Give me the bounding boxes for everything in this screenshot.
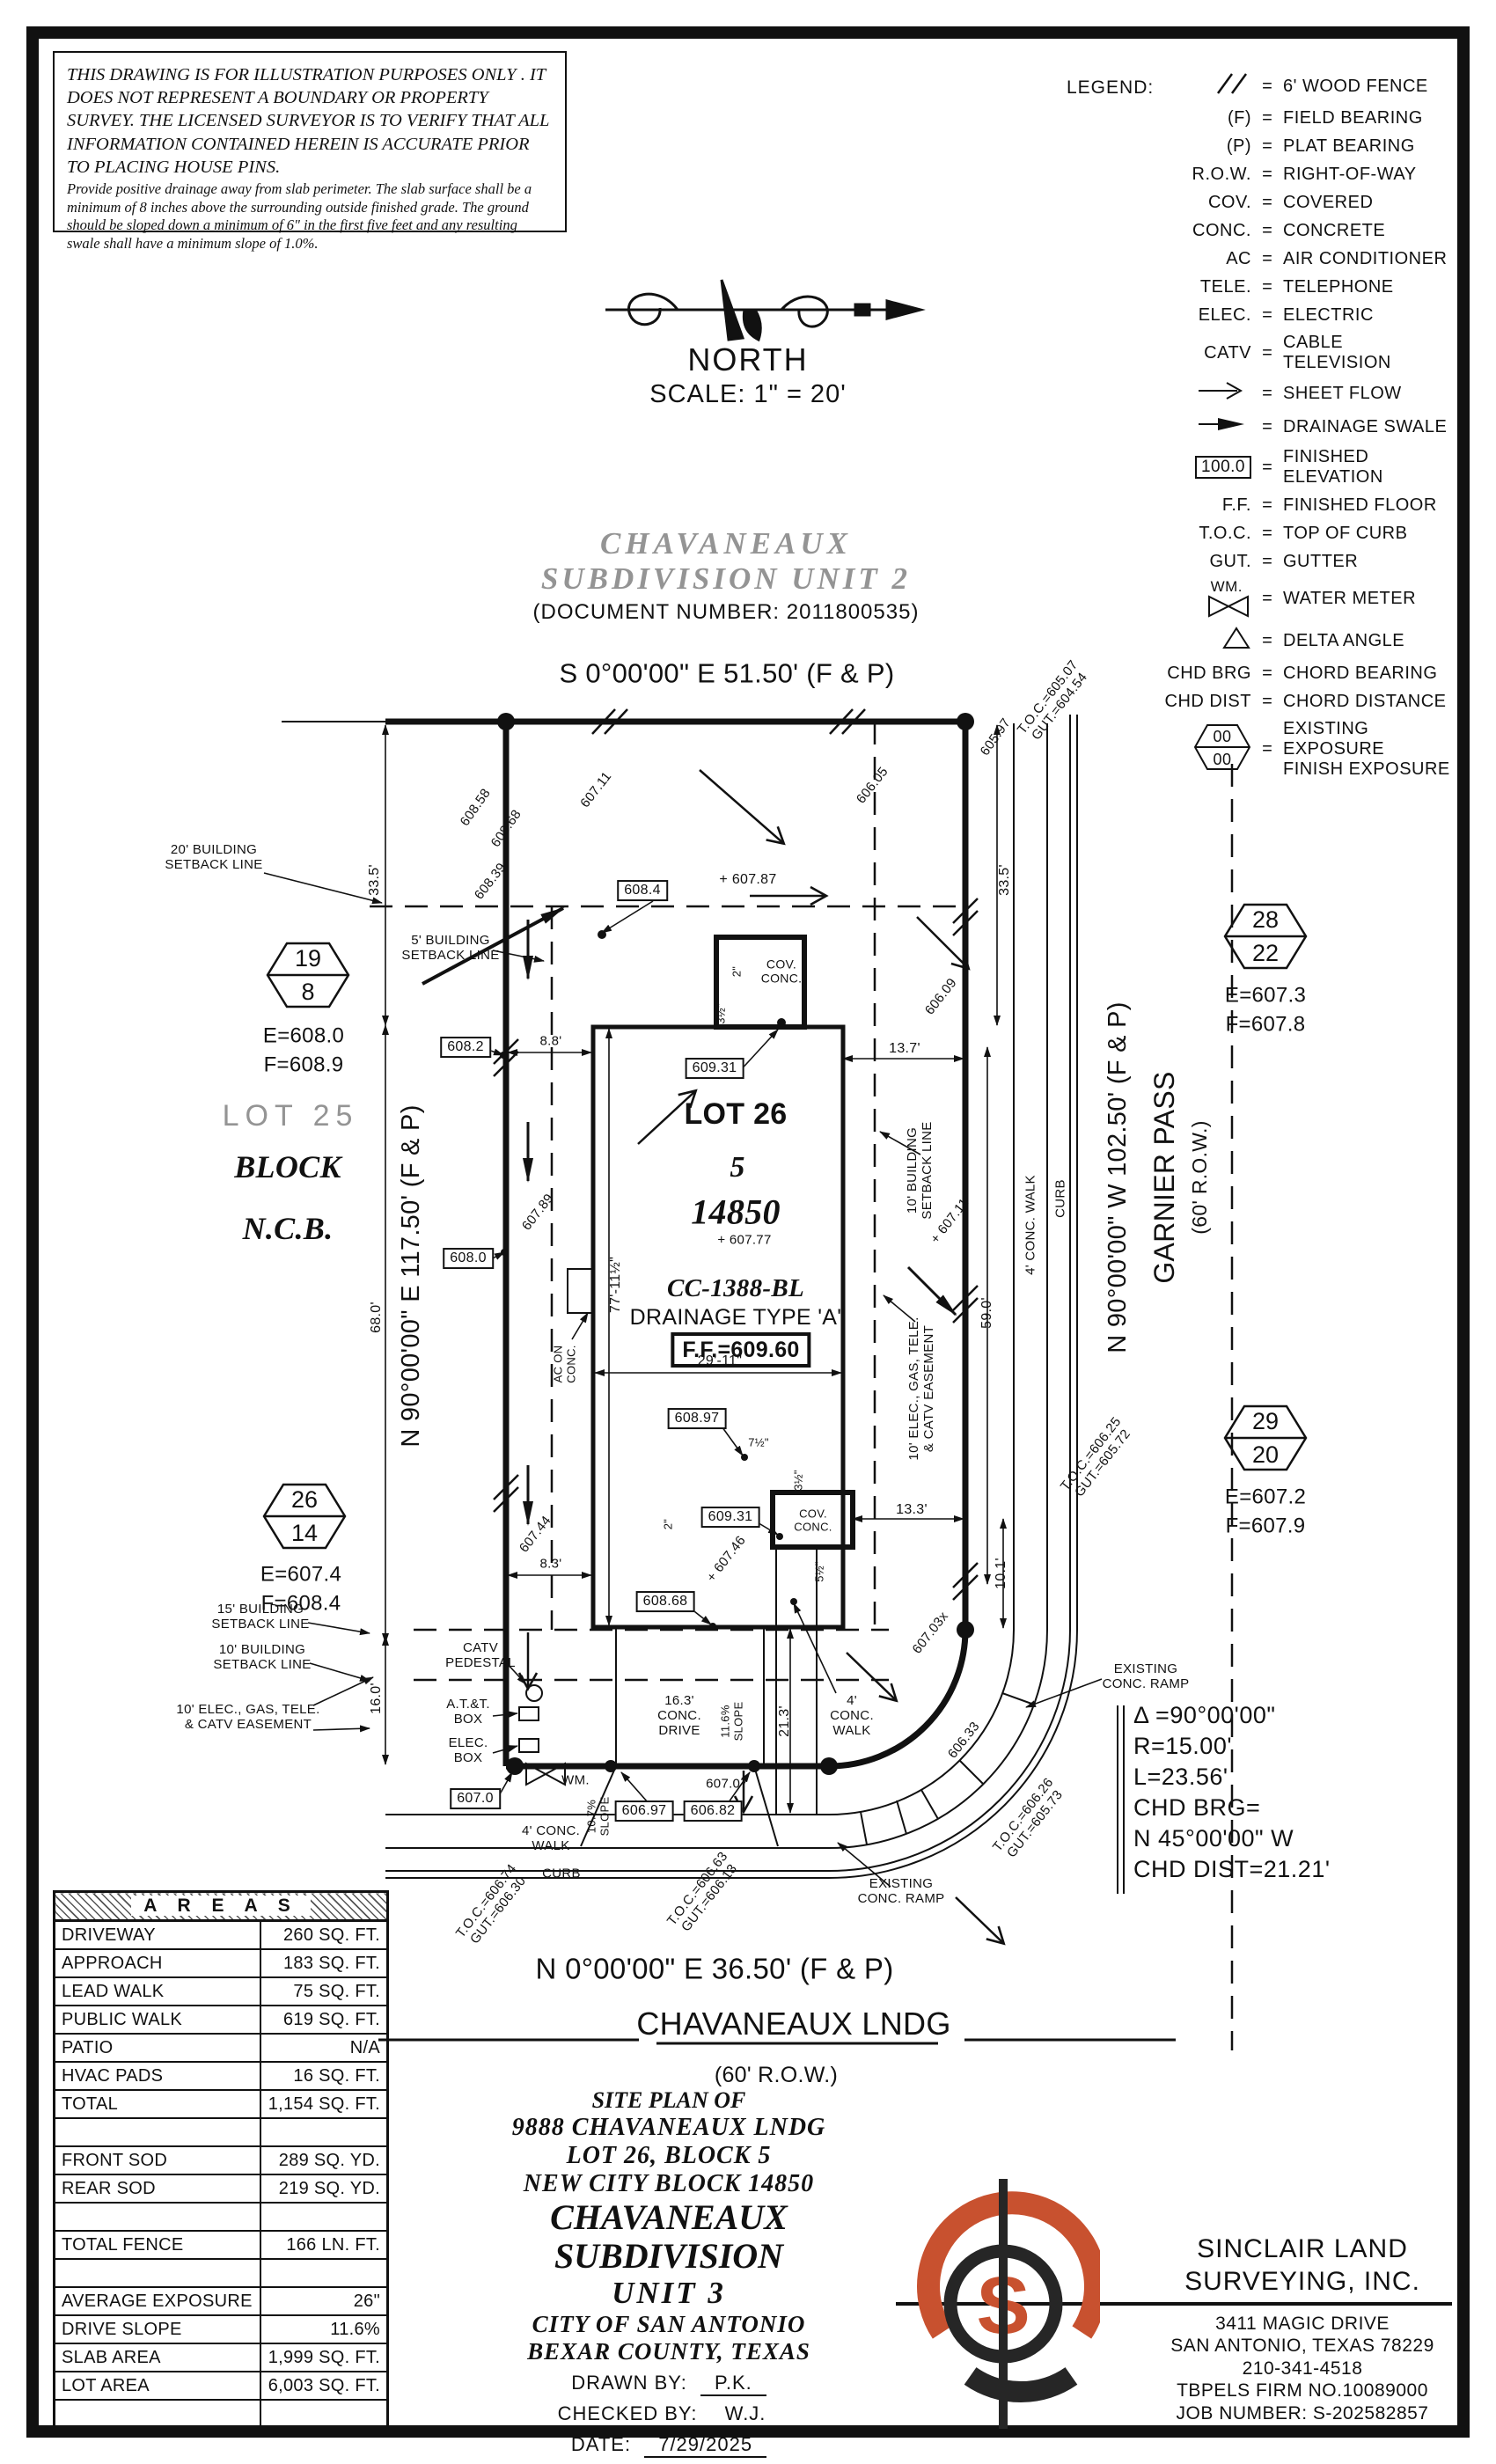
areas-row-value: 1,154 SQ. FT. <box>260 2090 388 2118</box>
plan-label: 15' BUILDING SETBACK LINE <box>211 1602 309 1632</box>
plan-label: 77'-11½" <box>608 1257 624 1313</box>
areas-row-label <box>55 2259 261 2287</box>
checked-by-value: W.J. <box>711 2402 781 2427</box>
legend-item: COV.=COVERED <box>1144 192 1452 213</box>
plan-label: N.C.B. <box>243 1211 334 1246</box>
areas-row-value: 219 SQ. YD. <box>260 2174 388 2203</box>
curve-data-line: N 45°00'00" W <box>1133 1823 1397 1854</box>
curve-data-line: CHD BRG= <box>1133 1793 1397 1823</box>
areas-row-value: N/A <box>260 2034 388 2062</box>
plan-label: 10' ELEC., GAS, TELE. & CATV EASEMENT <box>907 1316 937 1460</box>
plan-label: 608.97 <box>668 1408 727 1429</box>
legend-label: CHORD DISTANCE <box>1283 692 1447 712</box>
street-walk-curb <box>385 715 1077 1878</box>
legend-label: CONCRETE <box>1283 221 1385 241</box>
title-block-line: CHAVANEAUX SUBDIVISION <box>440 2198 898 2276</box>
plan-label: 7½" <box>748 1437 769 1450</box>
plan-label: + 607.46 <box>705 1534 750 1586</box>
hex-existing-exposure: 19 <box>295 945 321 972</box>
plan-label: 606.82 <box>684 1800 743 1822</box>
areas-row-label: HVAC PADS <box>55 2062 261 2090</box>
site-plan-sheet: THIS DRAWING IS FOR ILLUSTRATION PURPOSE… <box>0 0 1496 2464</box>
bearing-south-line: N 0°00'00" E 36.50' (F & P) <box>536 1954 894 1986</box>
title-block-line: UNIT 3 <box>440 2276 898 2310</box>
date-value: 7/29/2025 <box>644 2433 766 2458</box>
company-name-1: SINCLAIR LAND <box>1148 2233 1456 2266</box>
disclaimer-text-2: Provide positive drainage away from slab… <box>67 180 553 253</box>
legend-label: COVERED <box>1283 193 1373 213</box>
plan-label: 608.39 <box>473 861 510 903</box>
plan-label: 608.2 <box>440 1037 491 1058</box>
equals-sign: = <box>1251 552 1283 572</box>
legend-label: WATER METER <box>1283 589 1416 609</box>
company-street: 3411 MAGIC DRIVE <box>1140 2313 1465 2335</box>
north-arrow-icon <box>605 280 920 340</box>
legend-item: WM.=WATER METER <box>1144 579 1452 619</box>
areas-row-label: REAR SOD <box>55 2174 261 2203</box>
plan-label: 4' CONC. WALK <box>830 1694 874 1738</box>
plan-label: (60' R.O.W.) <box>1189 1120 1212 1234</box>
company-name: SINCLAIR LAND SURVEYING, INC. <box>1148 2233 1456 2298</box>
areas-row-label: DRIVEWAY <box>55 1921 261 1950</box>
plan-label: 607.89 <box>520 1192 558 1234</box>
triangle-icon <box>1144 626 1251 656</box>
plan-label: 16.0' <box>369 1683 385 1714</box>
hex-finish-exposure: 22 <box>1252 940 1279 966</box>
plan-label: 607.07 <box>706 1778 748 1793</box>
areas-row <box>55 2203 388 2231</box>
lot-hex-marker: 198 <box>266 938 350 1012</box>
areas-row-label <box>55 2400 261 2429</box>
hex-existing-exposure: 28 <box>1252 906 1279 933</box>
areas-row-label: PATIO <box>55 2034 261 2062</box>
plan-label: F=607.8 <box>1226 1014 1306 1038</box>
company-name-2: SURVEYING, INC. <box>1148 2266 1456 2299</box>
legend-label: DRAINAGE SWALE <box>1283 417 1447 437</box>
areas-row: DRIVE SLOPE11.6% <box>55 2315 388 2343</box>
plan-label: 5' BUILDING SETBACK LINE <box>401 934 499 964</box>
plan-label: 608.68 <box>488 808 524 851</box>
areas-row-label <box>55 2203 261 2231</box>
plan-label: 33.5' <box>997 864 1013 896</box>
lot-hex-marker: 2614 <box>262 1479 347 1553</box>
areas-row-value: 289 SQ. YD. <box>260 2146 388 2174</box>
areas-row: TOTAL1,154 SQ. FT. <box>55 2090 388 2118</box>
legend-items: =6' WOOD FENCE(F)=FIELD BEARING(P)=PLAT … <box>1144 72 1452 780</box>
areas-row <box>55 2118 388 2146</box>
plan-label: AC ON CONC. <box>552 1345 577 1382</box>
areas-row-label: AVERAGE EXPOSURE <box>55 2287 261 2315</box>
plan-label: 13.3' <box>896 1502 928 1518</box>
legend-label: 6' WOOD FENCE <box>1283 77 1428 97</box>
plan-label: E=607.4 <box>260 1564 341 1588</box>
areas-row <box>55 2400 388 2429</box>
tie-points <box>500 930 797 1630</box>
areas-row-label: DRIVE SLOPE <box>55 2315 261 2343</box>
plan-label: CC-1388-BL <box>667 1274 804 1302</box>
disclaimer-note: THIS DRAWING IS FOR ILLUSTRATION PURPOSE… <box>53 51 567 232</box>
legend-item: CATV=CABLE TELEVISION <box>1144 333 1452 373</box>
legend-symbol: F.F. <box>1144 495 1251 516</box>
equals-sign: = <box>1251 249 1283 269</box>
equals-sign: = <box>1251 631 1283 651</box>
legend-symbol: (P) <box>1144 136 1251 157</box>
lot-number-label: LOT 26 <box>684 1097 787 1131</box>
utility-symbols <box>519 1685 565 1785</box>
plan-label: DRAINAGE TYPE 'A' <box>630 1305 842 1330</box>
areas-row-value: 6,003 SQ. FT. <box>260 2372 388 2400</box>
title-block-line: LOT 26, BLOCK 5 <box>440 2142 898 2170</box>
equals-sign: = <box>1251 524 1283 544</box>
plan-label: 608.0 <box>443 1248 494 1269</box>
plan-label: (60' R.O.W.) <box>715 2063 838 2087</box>
street-centerline <box>378 2040 1176 2043</box>
legend-label: RIGHT-OF-WAY <box>1283 165 1417 185</box>
areas-table-header: A R E A S <box>55 1892 388 1921</box>
legend-label: AIR CONDITIONER <box>1283 249 1447 269</box>
plan-label: 11.6% SLOPE <box>719 1702 744 1742</box>
equals-sign: = <box>1251 458 1283 478</box>
equals-sign: = <box>1251 495 1283 516</box>
svg-text:00: 00 <box>1213 728 1231 745</box>
plan-label: 608.58 <box>458 787 494 830</box>
equals-sign: = <box>1251 193 1283 213</box>
street-name-chavaneaux: CHAVANEAUX LNDG <box>636 2006 950 2042</box>
legend-title: LEGEND: <box>1067 77 1154 99</box>
legend-symbol: COV. <box>1144 193 1251 213</box>
plan-label: 10.7% SLOPE <box>585 1797 611 1837</box>
areas-row: REAR SOD219 SQ. YD. <box>55 2174 388 2203</box>
plan-label: 8.3' <box>540 1558 562 1573</box>
curve-data-block: Δ =90°00'00"R=15.00'L=23.56'CHD BRG=N 45… <box>1133 1700 1397 1885</box>
areas-row: APPROACH183 SQ. FT. <box>55 1949 388 1977</box>
legend-label: GUTTER <box>1283 552 1358 572</box>
plan-label: 10.1' <box>994 1558 1009 1589</box>
areas-row-value: 16 SQ. FT. <box>260 2062 388 2090</box>
plan-label: 13.7' <box>889 1041 920 1057</box>
legend-item: R.O.W.=RIGHT-OF-WAY <box>1144 164 1452 185</box>
legend-item: (P)=PLAT BEARING <box>1144 136 1452 157</box>
legend-item: CHD BRG=CHORD BEARING <box>1144 663 1452 684</box>
company-phone: 210-341-4518 <box>1140 2358 1465 2380</box>
legend-item: CONC.=CONCRETE <box>1144 220 1452 241</box>
areas-row-value: 11.6% <box>260 2315 388 2343</box>
legend-item: CHD DIST=CHORD DISTANCE <box>1144 691 1452 712</box>
plan-label: + 607.77 <box>717 1234 771 1249</box>
plan-label: 3½" <box>793 1470 806 1491</box>
curve-data-line: Δ =90°00'00" <box>1133 1700 1397 1731</box>
areas-row-label: TOTAL FENCE <box>55 2231 261 2259</box>
legend-item: ELEC.=ELECTRIC <box>1144 304 1452 326</box>
equals-sign: = <box>1251 305 1283 326</box>
plan-label: F=608.9 <box>264 1054 344 1078</box>
curve-data-line: CHD DIST=21.21' <box>1133 1854 1397 1885</box>
adjacent-lot-label: LOT 25 <box>223 1099 359 1133</box>
equals-sign: = <box>1251 136 1283 157</box>
plan-label: 16.3' CONC. DRIVE <box>657 1694 701 1738</box>
legend-symbol: ELEC. <box>1144 305 1251 326</box>
areas-row: TOTAL FENCE166 LN. FT. <box>55 2231 388 2259</box>
areas-row-label: PUBLIC WALK <box>55 2006 261 2034</box>
legend-label: SHEET FLOW <box>1283 384 1402 404</box>
equals-sign: = <box>1251 692 1283 712</box>
plan-label: F=607.9 <box>1226 1515 1306 1539</box>
hex-icon: 0000 <box>1144 722 1251 778</box>
legend-symbol: R.O.W. <box>1144 165 1251 185</box>
title-block-line: NEW CITY BLOCK 14850 <box>440 2170 898 2198</box>
areas-row: LOT AREA6,003 SQ. FT. <box>55 2372 388 2400</box>
areas-row-value: 75 SQ. FT. <box>260 1977 388 2006</box>
equals-sign: = <box>1251 417 1283 437</box>
drawn-by-value: P.K. <box>700 2372 766 2396</box>
legend-item: 0000=EXISTING EXPOSURE FINISH EXPOSURE <box>1144 719 1452 780</box>
scale-label: SCALE: 1" = 20' <box>563 380 933 409</box>
areas-row-value <box>260 2259 388 2287</box>
areas-row: LEAD WALK75 SQ. FT. <box>55 1977 388 2006</box>
legend-label: TOP OF CURB <box>1283 524 1407 544</box>
plan-label: 59.0' <box>979 1297 995 1329</box>
plan-label: 68.0' <box>369 1302 385 1333</box>
legend-symbol: (F) <box>1144 108 1251 128</box>
plan-label: 2" <box>731 966 744 977</box>
areas-row-value <box>260 2203 388 2231</box>
plan-label: 608.68 <box>636 1591 695 1612</box>
equals-sign: = <box>1251 384 1283 404</box>
plan-label: T.O.C.=606.63 GUT.=606.13 <box>665 1850 744 1938</box>
plan-label: 29'-11" <box>698 1353 743 1369</box>
flow-arrows <box>422 770 1003 1943</box>
title-block: SITE PLAN OF9888 CHAVANEAUX LNDGLOT 26, … <box>440 2087 898 2458</box>
lot-hex-marker: 2920 <box>1223 1401 1308 1475</box>
lot-boundary <box>282 722 965 1766</box>
lot-hex-marker: 2822 <box>1223 899 1308 973</box>
areas-row: SLAB AREA1,999 SQ. FT. <box>55 2343 388 2372</box>
title-block-line: 9888 CHAVANEAUX LNDG <box>440 2114 898 2142</box>
subdivision-unit: SUBDIVISION UNIT 2 <box>422 561 1030 597</box>
checked-by-row: CHECKED BY: W.J. <box>440 2402 898 2427</box>
legend-item: F.F.=FINISHED FLOOR <box>1144 495 1452 516</box>
areas-row-label: LOT AREA <box>55 2372 261 2400</box>
plan-label: F=608.4 <box>261 1593 341 1617</box>
plan-label: 609.31 <box>686 1058 744 1079</box>
plan-label: 4' CONC. WALK <box>522 1824 580 1854</box>
plan-label: 8.8' <box>540 1035 562 1050</box>
arrow-open-icon <box>1144 380 1251 407</box>
hex-finish-exposure: 20 <box>1252 1441 1279 1468</box>
equals-sign: = <box>1251 221 1283 241</box>
plan-label: 607.0 <box>450 1788 501 1809</box>
plan-label: T.O.C.=606.74 GUT.=606.30 <box>454 1862 532 1950</box>
ncb-number-label: 14850 <box>691 1193 781 1233</box>
legend-label: FIELD BEARING <box>1283 108 1423 128</box>
legend-item: =6' WOOD FENCE <box>1144 72 1452 100</box>
document-number: (DOCUMENT NUMBER: 2011800535) <box>422 600 1030 625</box>
plan-label: 2" <box>663 1519 676 1529</box>
plan-label: 607.11 <box>578 769 615 810</box>
water-meter-icon <box>526 1764 546 1785</box>
disclaimer-text-1: THIS DRAWING IS FOR ILLUSTRATION PURPOSE… <box>67 63 553 179</box>
legend-symbol: CONC. <box>1144 221 1251 241</box>
areas-row-label: TOTAL <box>55 2090 261 2118</box>
title-block-lines: SITE PLAN OF9888 CHAVANEAUX LNDGLOT 26, … <box>440 2087 898 2365</box>
plan-label: EXISTING CONC. RAMP <box>1103 1662 1190 1692</box>
plan-label: 608.4 <box>617 880 668 901</box>
legend-label: CHORD BEARING <box>1283 664 1437 684</box>
legend-item: =DELTA ANGLE <box>1144 626 1452 656</box>
plan-label: + 607.11 <box>928 1196 972 1247</box>
plan-label: 33.5' <box>367 864 383 896</box>
equals-sign: = <box>1251 739 1283 759</box>
svg-text:00: 00 <box>1213 751 1231 768</box>
plan-label: A.T.&T. BOX <box>446 1698 490 1727</box>
areas-row-value: 260 SQ. FT. <box>260 1921 388 1950</box>
company-city: SAN ANTONIO, TEXAS 78229 <box>1140 2335 1465 2357</box>
finished-elevation-box-icon: 100.0 <box>1144 456 1251 479</box>
subdivision-name: CHAVANEAUX <box>422 526 1030 561</box>
company-firm-number: TBPELS FIRM NO.10089000 <box>1140 2380 1465 2402</box>
legend-item: 100.0=FINISHED ELEVATION <box>1144 447 1452 488</box>
areas-row-value: 26" <box>260 2287 388 2315</box>
areas-row-label: LEAD WALK <box>55 1977 261 2006</box>
legend-item: (F)=FIELD BEARING <box>1144 107 1452 128</box>
equals-sign: = <box>1251 589 1283 609</box>
legend-label: DELTA ANGLE <box>1283 631 1404 651</box>
areas-row-value <box>260 2400 388 2429</box>
plan-label: 10' ELEC., GAS, TELE. & CATV EASEMENT <box>176 1703 319 1733</box>
areas-row: FRONT SOD289 SQ. YD. <box>55 2146 388 2174</box>
legend-symbol: AC <box>1144 249 1251 269</box>
subdivision-header: CHAVANEAUX SUBDIVISION UNIT 2 (DOCUMENT … <box>422 526 1030 625</box>
areas-row-value: 619 SQ. FT. <box>260 2006 388 2034</box>
areas-row-value <box>260 2118 388 2146</box>
plan-label: 20' BUILDING SETBACK LINE <box>165 843 262 873</box>
areas-row: HVAC PADS16 SQ. FT. <box>55 2062 388 2090</box>
plan-label: COV. CONC. <box>794 1507 832 1533</box>
legend-item: =DRAINAGE SWALE <box>1144 414 1452 440</box>
plan-label: E=608.0 <box>263 1025 344 1049</box>
areas-row-label: SLAB AREA <box>55 2343 261 2372</box>
plan-label: E=607.2 <box>1225 1486 1306 1510</box>
plan-label: 607.03x <box>910 1610 951 1657</box>
hex-existing-exposure: 29 <box>1252 1408 1279 1434</box>
plan-label: T.O.C.=606.26 GUT.=605.73 <box>991 1776 1069 1864</box>
plan-label: 4' CONC. WALK <box>1024 1175 1039 1275</box>
fence-ticks <box>494 709 978 1600</box>
curve-data-bar <box>1118 1705 1124 1894</box>
plan-label: T.O.C.=605.07 GUT.=604.54 <box>1016 658 1094 746</box>
areas-row-label <box>55 2118 261 2146</box>
logo-dark-arc <box>971 2376 1072 2392</box>
equals-sign: = <box>1251 77 1283 97</box>
areas-row <box>55 2259 388 2287</box>
plan-label: 10' BUILDING SETBACK LINE <box>213 1643 311 1673</box>
areas-table-body: DRIVEWAY260 SQ. FT.APPROACH183 SQ. FT.LE… <box>55 1921 388 2429</box>
legend-label: FINISHED ELEVATION <box>1283 447 1452 488</box>
finished-floor-elevation: F.F.=609.60 <box>671 1332 810 1368</box>
checked-by-label: CHECKED BY: <box>558 2402 698 2424</box>
legend-item: T.O.C.=TOP OF CURB <box>1144 523 1452 544</box>
equals-sign: = <box>1251 277 1283 297</box>
plan-label: COV. CONC. <box>761 957 803 985</box>
block-number-label: 5 <box>730 1151 744 1184</box>
equals-sign: = <box>1251 108 1283 128</box>
areas-row-value: 166 LN. FT. <box>260 2231 388 2259</box>
date-label: DATE: <box>571 2433 631 2455</box>
areas-row-label: FRONT SOD <box>55 2146 261 2174</box>
plan-label: 606.97 <box>615 1800 674 1822</box>
areas-row-value: 183 SQ. FT. <box>260 1949 388 1977</box>
date-row: DATE: 7/29/2025 <box>440 2433 898 2458</box>
setback-lines <box>370 722 1232 2050</box>
dimension-lines <box>385 725 1003 1813</box>
legend-label: FINISHED FLOOR <box>1283 495 1437 516</box>
plan-label: ELEC. BOX <box>449 1736 488 1766</box>
plan-label: 607.44 <box>517 1514 555 1556</box>
title-block-line: CITY OF SAN ANTONIO <box>440 2311 898 2338</box>
plan-label: E=607.3 <box>1225 985 1306 1008</box>
elec-box-icon <box>519 1739 539 1752</box>
legend-item: =SHEET FLOW <box>1144 380 1452 407</box>
bearing-west-line: N 90°00'00" E 117.50' (F & P) <box>397 1104 425 1447</box>
company-job-number: JOB NUMBER: S-202582857 <box>1140 2402 1465 2424</box>
company-address: 3411 MAGIC DRIVE SAN ANTONIO, TEXAS 7822… <box>1140 2313 1465 2424</box>
legend-label: TELEPHONE <box>1283 277 1394 297</box>
att-box-icon <box>519 1707 539 1720</box>
legend-label: ELECTRIC <box>1283 305 1374 326</box>
arrow-solid-icon <box>1144 414 1251 440</box>
title-block-line: BEXAR COUNTY, TEXAS <box>440 2338 898 2365</box>
plan-label: 606.09 <box>923 976 961 1018</box>
legend-symbol: GUT. <box>1144 552 1251 572</box>
legend-label: EXISTING EXPOSURE FINISH EXPOSURE <box>1283 719 1452 780</box>
areas-row: AVERAGE EXPOSURE26" <box>55 2287 388 2315</box>
legend-symbol: TELE. <box>1144 277 1251 297</box>
plan-label: 5½" <box>814 1561 827 1582</box>
bearing-north-line: S 0°00'00" E 51.50' (F & P) <box>559 659 894 690</box>
bearing-east-line: N 90°00'00" W 102.50' (F & P) <box>1104 1001 1132 1353</box>
curve-data-line: R=15.00' <box>1133 1731 1397 1762</box>
areas-row: PATION/A <box>55 2034 388 2062</box>
legend-label: PLAT BEARING <box>1283 136 1415 157</box>
slash-icon <box>1144 72 1251 100</box>
plan-label: CURB <box>542 1867 581 1882</box>
plan-label: CURB <box>1054 1179 1069 1218</box>
street-name-garnier: GARNIER PASS <box>1149 1071 1181 1283</box>
plan-label: T.O.C.=606.25 GUT.=605.72 <box>1059 1415 1137 1503</box>
equals-sign: = <box>1251 664 1283 684</box>
plan-label: CATV PEDESTAL <box>445 1641 516 1671</box>
hex-finish-exposure: 14 <box>291 1520 318 1546</box>
plan-label: BLOCK <box>234 1149 341 1184</box>
house-outline <box>568 937 853 1846</box>
areas-row: DRIVEWAY260 SQ. FT. <box>55 1921 388 1950</box>
plan-label: 606.33 <box>946 1720 984 1762</box>
plan-label: WM. <box>561 1774 590 1789</box>
plan-label: 3½" <box>715 1003 729 1024</box>
title-block-line: SITE PLAN OF <box>440 2087 898 2114</box>
legend-item: TELE.=TELEPHONE <box>1144 276 1452 297</box>
plan-label: 10' BUILDING SETBACK LINE <box>906 1121 935 1219</box>
plan-label: 609.31 <box>701 1507 760 1528</box>
drawn-by-row: DRAWN BY: P.K. <box>440 2372 898 2396</box>
areas-row: PUBLIC WALK619 SQ. FT. <box>55 2006 388 2034</box>
areas-table: A R E A S DRIVEWAY260 SQ. FT.APPROACH183… <box>53 1890 389 2430</box>
areas-row-value: 1,999 SQ. FT. <box>260 2343 388 2372</box>
hex-finish-exposure: 8 <box>301 979 314 1005</box>
legend-symbol: CHD BRG <box>1144 664 1251 684</box>
hex-existing-exposure: 26 <box>291 1486 318 1513</box>
legend-item: AC=AIR CONDITIONER <box>1144 248 1452 269</box>
